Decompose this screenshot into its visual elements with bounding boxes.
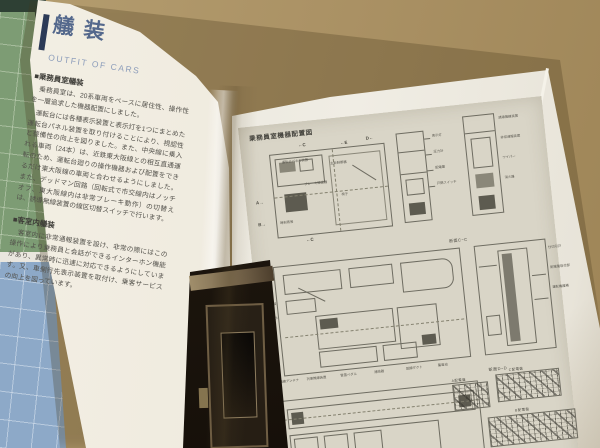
panel-dark-box — [409, 202, 426, 216]
callout-label: 警笛ペダル — [340, 372, 370, 379]
plan-box — [324, 433, 350, 448]
elevation-view-2 — [462, 113, 504, 216]
panel-line — [401, 172, 427, 175]
section-caption-dd: 断面D−D — [488, 365, 507, 373]
callout-label: 非常通報装置 — [500, 133, 530, 140]
leader-line — [532, 274, 546, 276]
callout-label: 表示灯 — [432, 132, 462, 139]
callout-label: 戸閉スイッチ — [437, 179, 467, 186]
elevation-view-d — [474, 238, 557, 355]
breaker-table-c — [495, 368, 562, 403]
callout-label: 列車無線装置 — [307, 375, 337, 382]
plan-box — [353, 430, 383, 448]
diagram-panel: 乗務員室機器配置図 ←C ←E D← A→ B→ ←C 運転台パネル装置 主幹制… — [238, 96, 584, 448]
callout-label: 配線ダクト — [406, 365, 434, 372]
leader-line — [427, 170, 433, 171]
elevation-view-1 — [395, 131, 432, 223]
panel-box — [470, 137, 493, 169]
plan-box — [294, 436, 320, 448]
panel-gray-box — [475, 173, 494, 189]
section-marker-d: D← — [366, 135, 374, 141]
callout-label: 圧力計 — [433, 148, 463, 155]
body-paragraph: 運転台には各種表示装置と表示灯を1つにまとめた運転台パネル装置を取り付けることに… — [15, 108, 186, 228]
breaker-table-a — [452, 381, 491, 411]
section-marker-b: B→ — [258, 222, 266, 228]
plan-box — [348, 264, 394, 288]
section-marker-e: ←E — [340, 140, 348, 146]
leader-line — [429, 186, 435, 187]
callout-label: 連結器 — [374, 368, 402, 375]
callout-label: 誘導無線装置 — [498, 114, 528, 121]
panel-line — [398, 150, 424, 153]
photo-of-open-brochure: 乗務員室機器配置図 ←C ←E D← A→ B→ ←C 運転台パネル装置 主幹制… — [0, 0, 600, 448]
panel-box — [405, 178, 425, 196]
plan-box — [382, 342, 417, 361]
plan-dark-box — [422, 333, 437, 344]
callout-label: 配電盤 — [435, 163, 465, 170]
plan-box — [319, 346, 378, 368]
breaker-table-b — [488, 408, 579, 447]
panel-dark-box — [478, 195, 495, 211]
plan-view-main — [273, 247, 471, 376]
leader-line — [534, 297, 548, 299]
plan-box — [283, 269, 343, 295]
plan-box-rounded — [400, 257, 455, 292]
panel-line — [465, 130, 495, 134]
section-marker-c-bottom: ←C — [306, 237, 314, 243]
leader-line — [426, 154, 432, 155]
table-caption-b: B配電盤 — [515, 406, 530, 412]
plan-box — [285, 298, 316, 315]
callout-label: 消火器 — [505, 173, 535, 180]
leader-line — [424, 138, 430, 139]
plan-dark-box — [319, 318, 338, 330]
section-caption-cc: 断面C−C — [449, 237, 468, 245]
diagram-title: 乗務員室機器配置図 — [249, 126, 314, 143]
section-marker-c: ←C — [298, 142, 306, 148]
cabinet-box — [486, 315, 502, 336]
callout-label: ワイパー — [502, 153, 532, 160]
leader-line — [479, 265, 497, 268]
callout-label: 蓄電池 — [438, 362, 464, 369]
section-marker-a: A→ — [256, 200, 264, 206]
